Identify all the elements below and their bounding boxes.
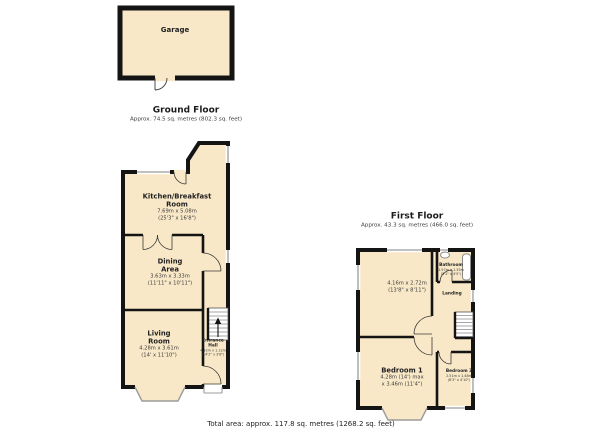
bedroom1-label: Bedroom 1 4.28m (14') max x 3.46m (11'4"…: [367, 366, 437, 387]
ground-floor-title: Ground Floor Approx. 74.5 sq. metres (80…: [106, 106, 266, 123]
garage-walls: [120, 8, 232, 78]
ground-floor-subtitle: Approx. 74.5 sq. metres (802.3 sq. feet): [106, 116, 266, 123]
dining-name: Dining Area: [151, 257, 189, 273]
living-dims-imperial: (14' x 11'10"): [124, 352, 194, 359]
dining-dims-imperial: (11'11" x 10'11"): [135, 280, 205, 287]
kitchen-label: Kitchen/Breakfast Room 7.69m x 5.08m (25…: [135, 192, 219, 221]
entrance-hall-label: Entrance Hall 4.32m x 1.12m (14'2" x 3'8…: [197, 339, 229, 358]
first-floor-title: First Floor Approx. 43.3 sq. metres (466…: [337, 212, 497, 229]
total-area-text: Total area: approx. 117.8 sq. metres (12…: [141, 420, 461, 428]
entrance-hall-dims-imperial: (14'2" x 3'8"): [197, 353, 229, 357]
bathroom-dims-imperial: (5'2" x 4'5"): [434, 273, 468, 277]
bedroom3-label: Bedroom 3 2.51m x 1.48m (8'3" x 4'10"): [442, 369, 476, 383]
garage-door-opening: [155, 75, 175, 81]
front-door-opening: [204, 384, 222, 389]
entrance-hall-name: Entrance Hall: [202, 339, 224, 349]
kitchen-dims-imperial: (25'3" x 16'8"): [135, 215, 219, 222]
bedroom1-name: Bedroom 1: [367, 366, 437, 374]
first-floor-subtitle: Approx. 43.3 sq. metres (466.0 sq. feet): [337, 222, 497, 229]
sink: [441, 252, 450, 258]
landing-label: Landing: [435, 291, 469, 296]
garage-plan: [114, 2, 240, 100]
floorplan-page: Garage Ground Floor Approx. 74.5 sq. met…: [0, 0, 601, 437]
ff-bay-window: [382, 408, 427, 420]
bedroom2-label: 4.16m x 2.72m (13'8" x 8'11"): [372, 281, 442, 294]
ground-staircase: [208, 308, 228, 340]
garage-label: Garage: [161, 26, 189, 34]
bedroom1-dims-imperial: x 3.46m (11'4"): [367, 381, 437, 388]
ground-floor-title-text: Ground Floor: [106, 106, 266, 116]
kitchen-name: Kitchen/Breakfast Room: [135, 192, 219, 208]
first-floor-title-text: First Floor: [337, 212, 497, 222]
bathroom-label: Bathroom 1.57m x 1.35m (5'2" x 4'5"): [434, 263, 468, 277]
living-name: Living Room: [138, 329, 180, 345]
bedroom2-dims-imperial: (13'8" x 8'11"): [372, 287, 442, 294]
living-label: Living Room 4.28m x 3.61m (14' x 11'10"): [124, 329, 194, 358]
landing-name: Landing: [435, 291, 469, 296]
bedroom3-dims-imperial: (8'3" x 4'10"): [442, 379, 476, 383]
bay-window: [135, 387, 185, 401]
rear-door-opening: [174, 170, 186, 174]
first-staircase: [455, 312, 473, 338]
dining-label: Dining Area 3.63m x 3.33m (11'11" x 10'1…: [135, 257, 205, 286]
